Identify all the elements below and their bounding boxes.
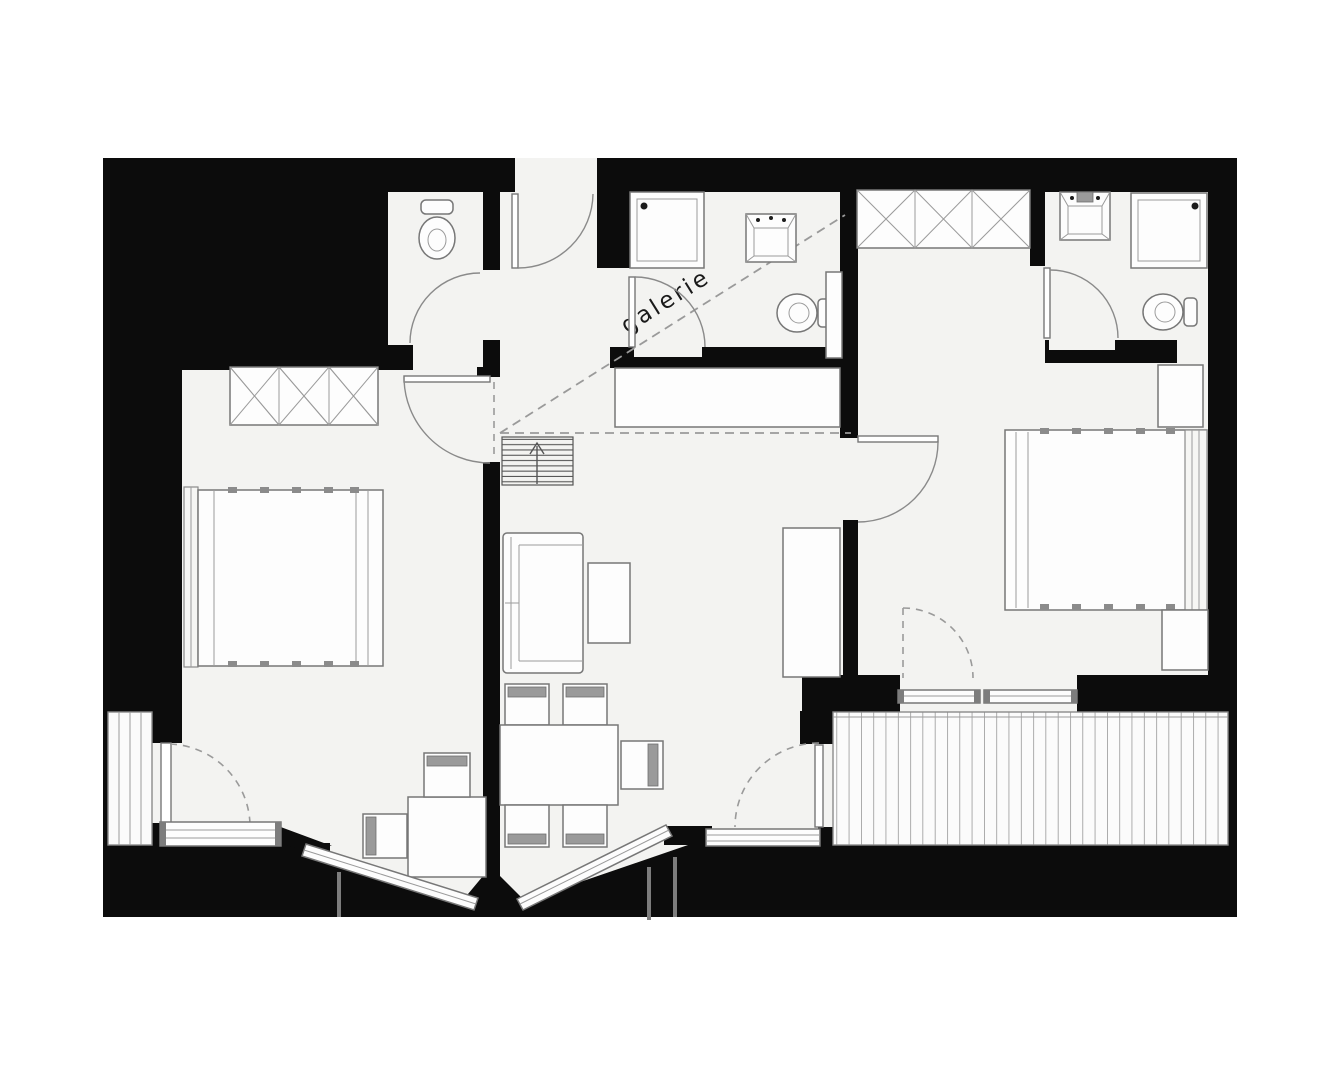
chair-icon — [621, 741, 663, 789]
stairs — [502, 437, 573, 485]
middle-window — [706, 829, 820, 846]
shower-icon — [630, 192, 704, 268]
double-bed-icon — [1005, 430, 1207, 610]
left-balcony — [108, 712, 152, 845]
deck-terrace — [833, 712, 1228, 845]
desk-chair-top — [424, 753, 470, 797]
toilet-icon — [777, 294, 831, 332]
toilet-icon — [1143, 294, 1197, 330]
nightstand — [1158, 365, 1203, 427]
desk-icon — [408, 797, 486, 877]
desk-chair-left — [363, 814, 407, 858]
shower-icon — [1131, 193, 1207, 268]
sink-icon — [746, 214, 796, 262]
dining-table — [500, 725, 618, 805]
double-bed-icon — [184, 487, 383, 667]
chair-icon — [563, 684, 607, 725]
chair-icon — [563, 805, 607, 847]
post — [673, 857, 677, 917]
duct-shaft — [826, 272, 842, 358]
nightstand — [1162, 610, 1208, 670]
post — [337, 872, 341, 917]
sofa-icon — [503, 533, 583, 673]
post — [647, 867, 651, 920]
coffee-table — [588, 563, 630, 643]
sideboard — [783, 528, 840, 677]
bedroom-window — [898, 690, 980, 703]
floor-plan-drawing: galerie — [0, 0, 1340, 1080]
wardrobe-icon — [857, 190, 1030, 248]
kitchen-counter — [615, 368, 840, 427]
chair-icon — [505, 684, 549, 725]
floor-plan-page: galerie — [0, 0, 1340, 1080]
chair-icon — [505, 805, 549, 847]
toilet-icon — [419, 200, 455, 259]
bedroom-window — [984, 690, 1077, 703]
wardrobe-icon — [230, 367, 378, 425]
sink-icon — [1060, 192, 1110, 240]
left-window — [160, 822, 281, 846]
